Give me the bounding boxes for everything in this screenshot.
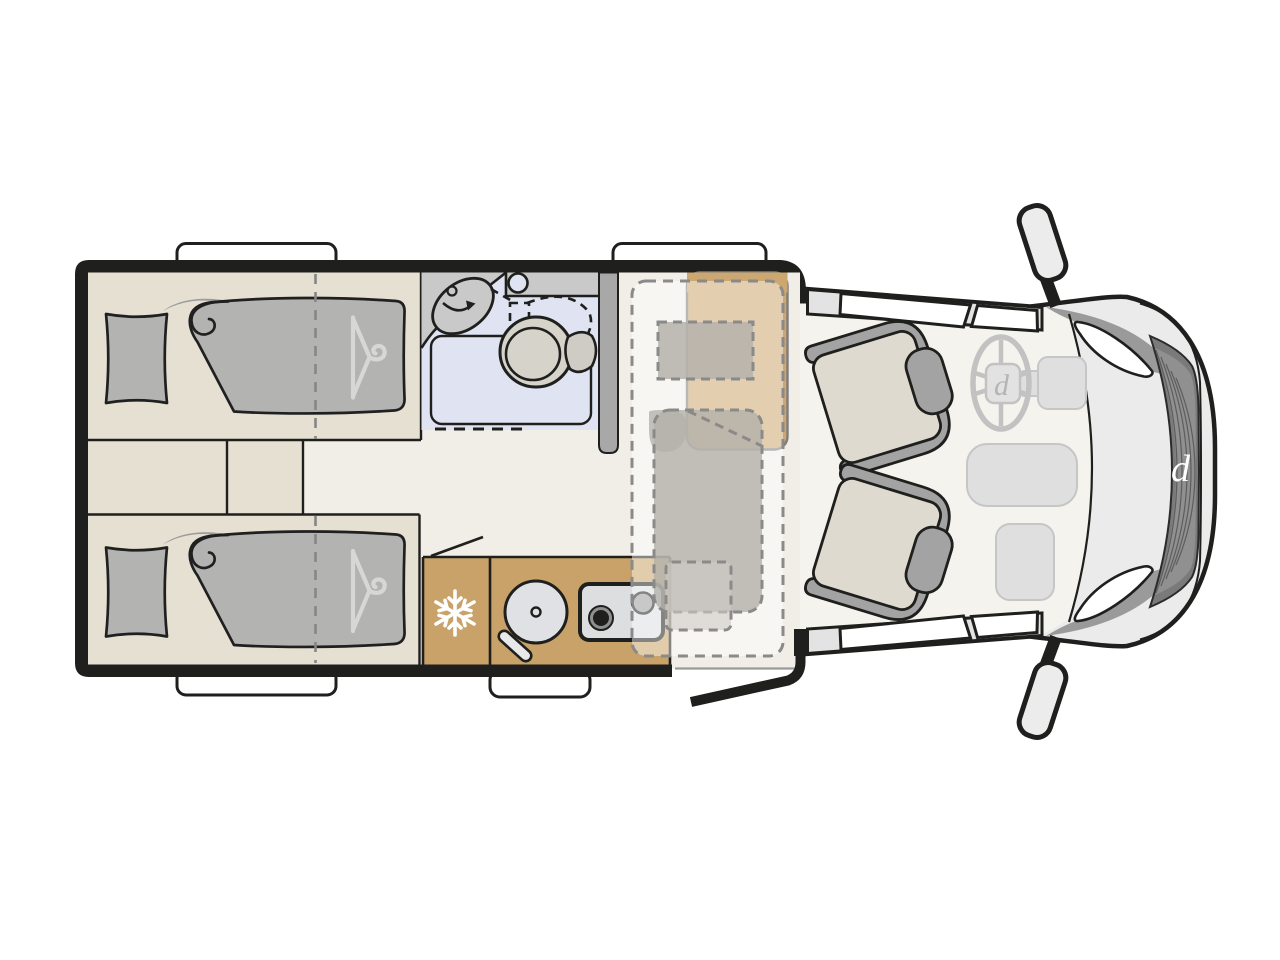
svg-text:d: d	[1171, 448, 1191, 490]
svg-text:d: d	[994, 369, 1010, 402]
